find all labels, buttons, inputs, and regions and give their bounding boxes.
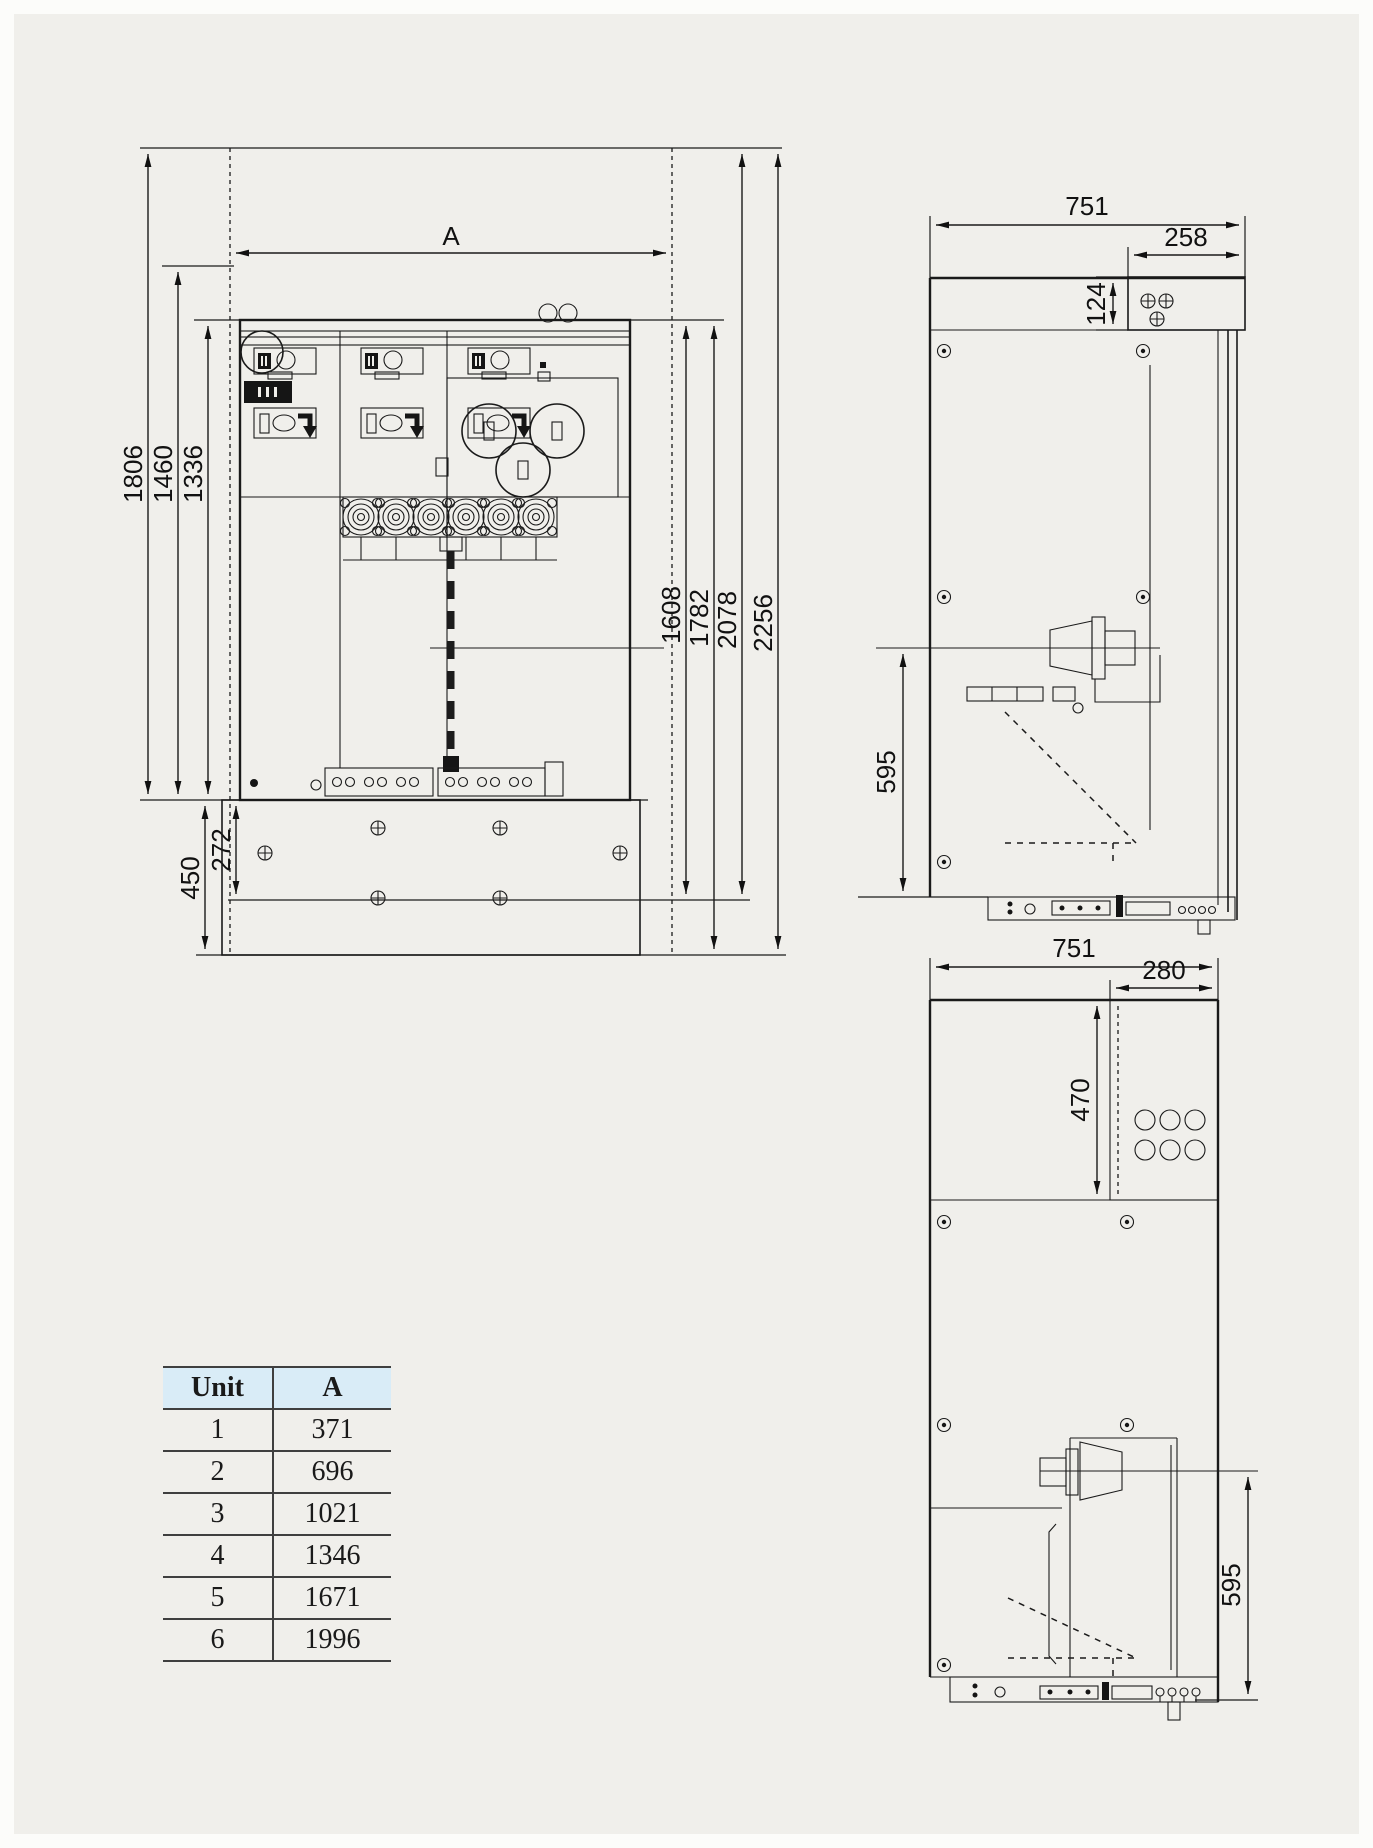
dim-label-1336: 1336 bbox=[178, 445, 208, 503]
a-cell: 696 bbox=[273, 1451, 391, 1493]
front-view-cabinet bbox=[240, 304, 630, 800]
dim-label-751-bottom: 751 bbox=[1052, 933, 1095, 963]
cable-bushings bbox=[341, 499, 557, 536]
side-view-top-body bbox=[930, 277, 1245, 934]
dim-label-a: A bbox=[442, 221, 460, 251]
a-cell: 1996 bbox=[273, 1619, 391, 1661]
a-cell: 1346 bbox=[273, 1535, 391, 1577]
unit-cell: 5 bbox=[163, 1577, 273, 1619]
dim-label-124: 124 bbox=[1081, 282, 1111, 325]
dim-label-450: 450 bbox=[175, 856, 205, 899]
dim-label-1608: 1608 bbox=[656, 586, 686, 644]
vent-holes bbox=[1135, 1110, 1205, 1160]
dim-label-595-bottom: 595 bbox=[1216, 1563, 1246, 1606]
table-row: 2 696 bbox=[163, 1451, 391, 1493]
unit-cell: 2 bbox=[163, 1451, 273, 1493]
unit-cell: 1 bbox=[163, 1409, 273, 1451]
unit-size-table: Unit A 1 371 2 696 3 1021 4 1346 5 bbox=[163, 1366, 391, 1662]
unit-cell: 3 bbox=[163, 1493, 273, 1535]
table-header-unit: Unit bbox=[163, 1367, 273, 1409]
dim-label-280: 280 bbox=[1142, 955, 1185, 985]
dim-label-595-top: 595 bbox=[871, 750, 901, 793]
dim-label-1782: 1782 bbox=[684, 589, 714, 647]
door-swing-dashed-bottom bbox=[1008, 1598, 1136, 1658]
table-row: 3 1021 bbox=[163, 1493, 391, 1535]
a-cell: 371 bbox=[273, 1409, 391, 1451]
table-row: 1 371 bbox=[163, 1409, 391, 1451]
dim-label-1806: 1806 bbox=[118, 445, 148, 503]
dim-label-2256: 2256 bbox=[748, 594, 778, 652]
front-view: A 1806 1460 1336 1608 1782 2078 2256 450… bbox=[118, 148, 786, 955]
operating-mechanism-3 bbox=[468, 408, 531, 438]
side-bushing-top bbox=[1050, 617, 1160, 702]
a-cell: 1021 bbox=[273, 1493, 391, 1535]
side-view-top-base bbox=[988, 895, 1235, 934]
switch-indicator-1 bbox=[254, 348, 316, 379]
dim-label-272: 272 bbox=[206, 828, 236, 871]
dim-label-2078: 2078 bbox=[712, 591, 742, 649]
switch-indicator-2 bbox=[361, 348, 423, 379]
table-header-a: A bbox=[273, 1367, 391, 1409]
unit-cell: 6 bbox=[163, 1619, 273, 1661]
operating-mechanism-2 bbox=[361, 408, 424, 438]
dim-label-1460: 1460 bbox=[148, 445, 178, 503]
table-row: 5 1671 bbox=[163, 1577, 391, 1619]
side-view-top: 751 258 124 595 bbox=[858, 191, 1245, 934]
unit-cell: 4 bbox=[163, 1535, 273, 1577]
a-cell: 1671 bbox=[273, 1577, 391, 1619]
table-header-row: Unit A bbox=[163, 1367, 391, 1409]
side-view-top-dimensions: 751 258 124 595 bbox=[871, 191, 1239, 891]
switch-indicator-3 bbox=[468, 348, 530, 379]
dim-label-258: 258 bbox=[1164, 222, 1207, 252]
side-view-bottom-base bbox=[930, 1677, 1218, 1720]
table-row: 6 1996 bbox=[163, 1619, 391, 1661]
terminal-strips bbox=[250, 762, 563, 796]
table-row: 4 1346 bbox=[163, 1535, 391, 1577]
fuse-canister-3 bbox=[496, 443, 550, 497]
dim-label-470: 470 bbox=[1065, 1078, 1095, 1121]
operating-mechanism-1 bbox=[254, 408, 317, 438]
side-view-bottom-dimensions: 751 280 470 595 bbox=[936, 933, 1248, 1694]
dim-label-751-top: 751 bbox=[1065, 191, 1108, 221]
drawing-sheet: A 1806 1460 1336 1608 1782 2078 2256 450… bbox=[0, 0, 1373, 1848]
front-view-base-plinth bbox=[222, 800, 640, 955]
fuse-canister-2 bbox=[530, 404, 584, 458]
fuse-canister-1 bbox=[462, 404, 516, 458]
door-swing-dashed bbox=[1005, 712, 1136, 843]
side-view-bottom: 751 280 470 595 bbox=[930, 933, 1258, 1720]
